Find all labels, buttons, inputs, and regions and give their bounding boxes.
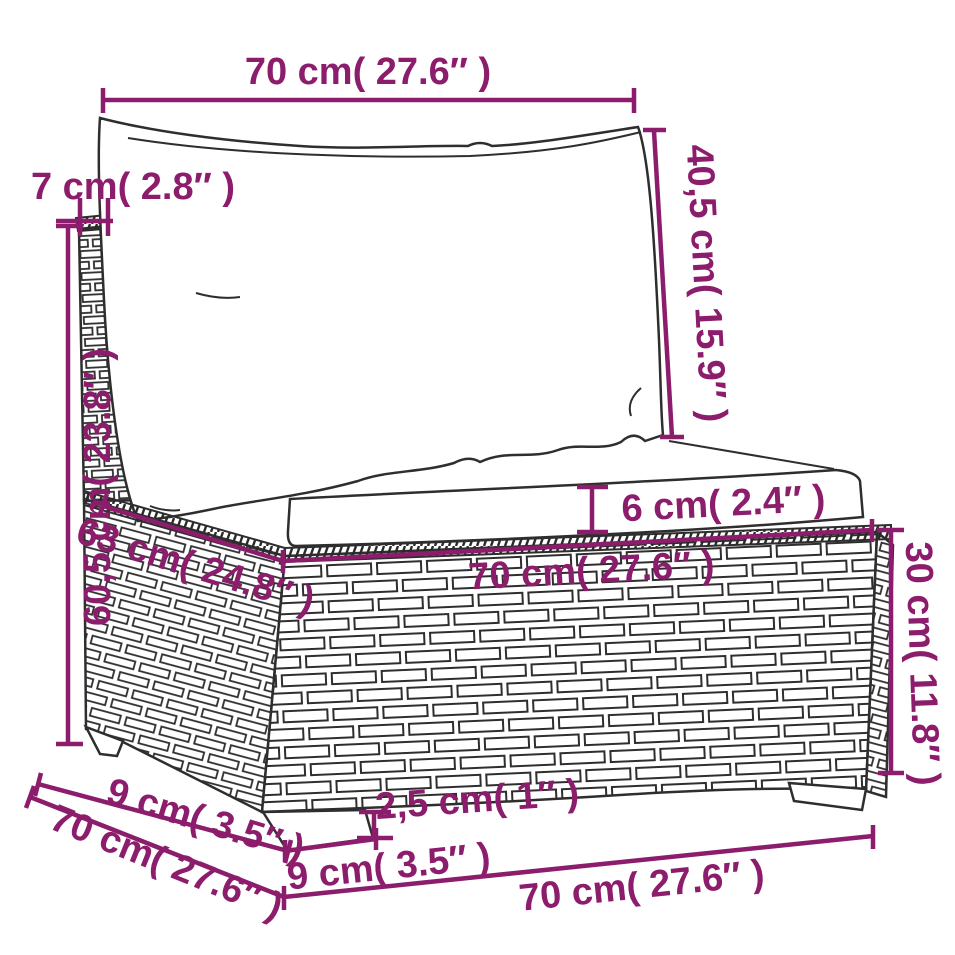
sofa-dimension-drawing: 70 cm( 27.6″ ) 7 cm( 2.8″ ) 40,5 cm( 15.… bbox=[0, 0, 955, 955]
product-dimension-diagram: 70 cm( 27.6″ ) 7 cm( 2.8″ ) 40,5 cm( 15.… bbox=[0, 0, 955, 955]
dim-label-base-height: 30 cm( 11.8″ ) bbox=[897, 541, 947, 787]
dim-label-total-height: 60,5 cm( 23.8″ ) bbox=[77, 348, 119, 626]
dim-label-back-panel-thickness: 7 cm( 2.8″ ) bbox=[31, 166, 235, 208]
dim-label-back-cushion-width: 70 cm( 27.6″ ) bbox=[245, 51, 491, 93]
